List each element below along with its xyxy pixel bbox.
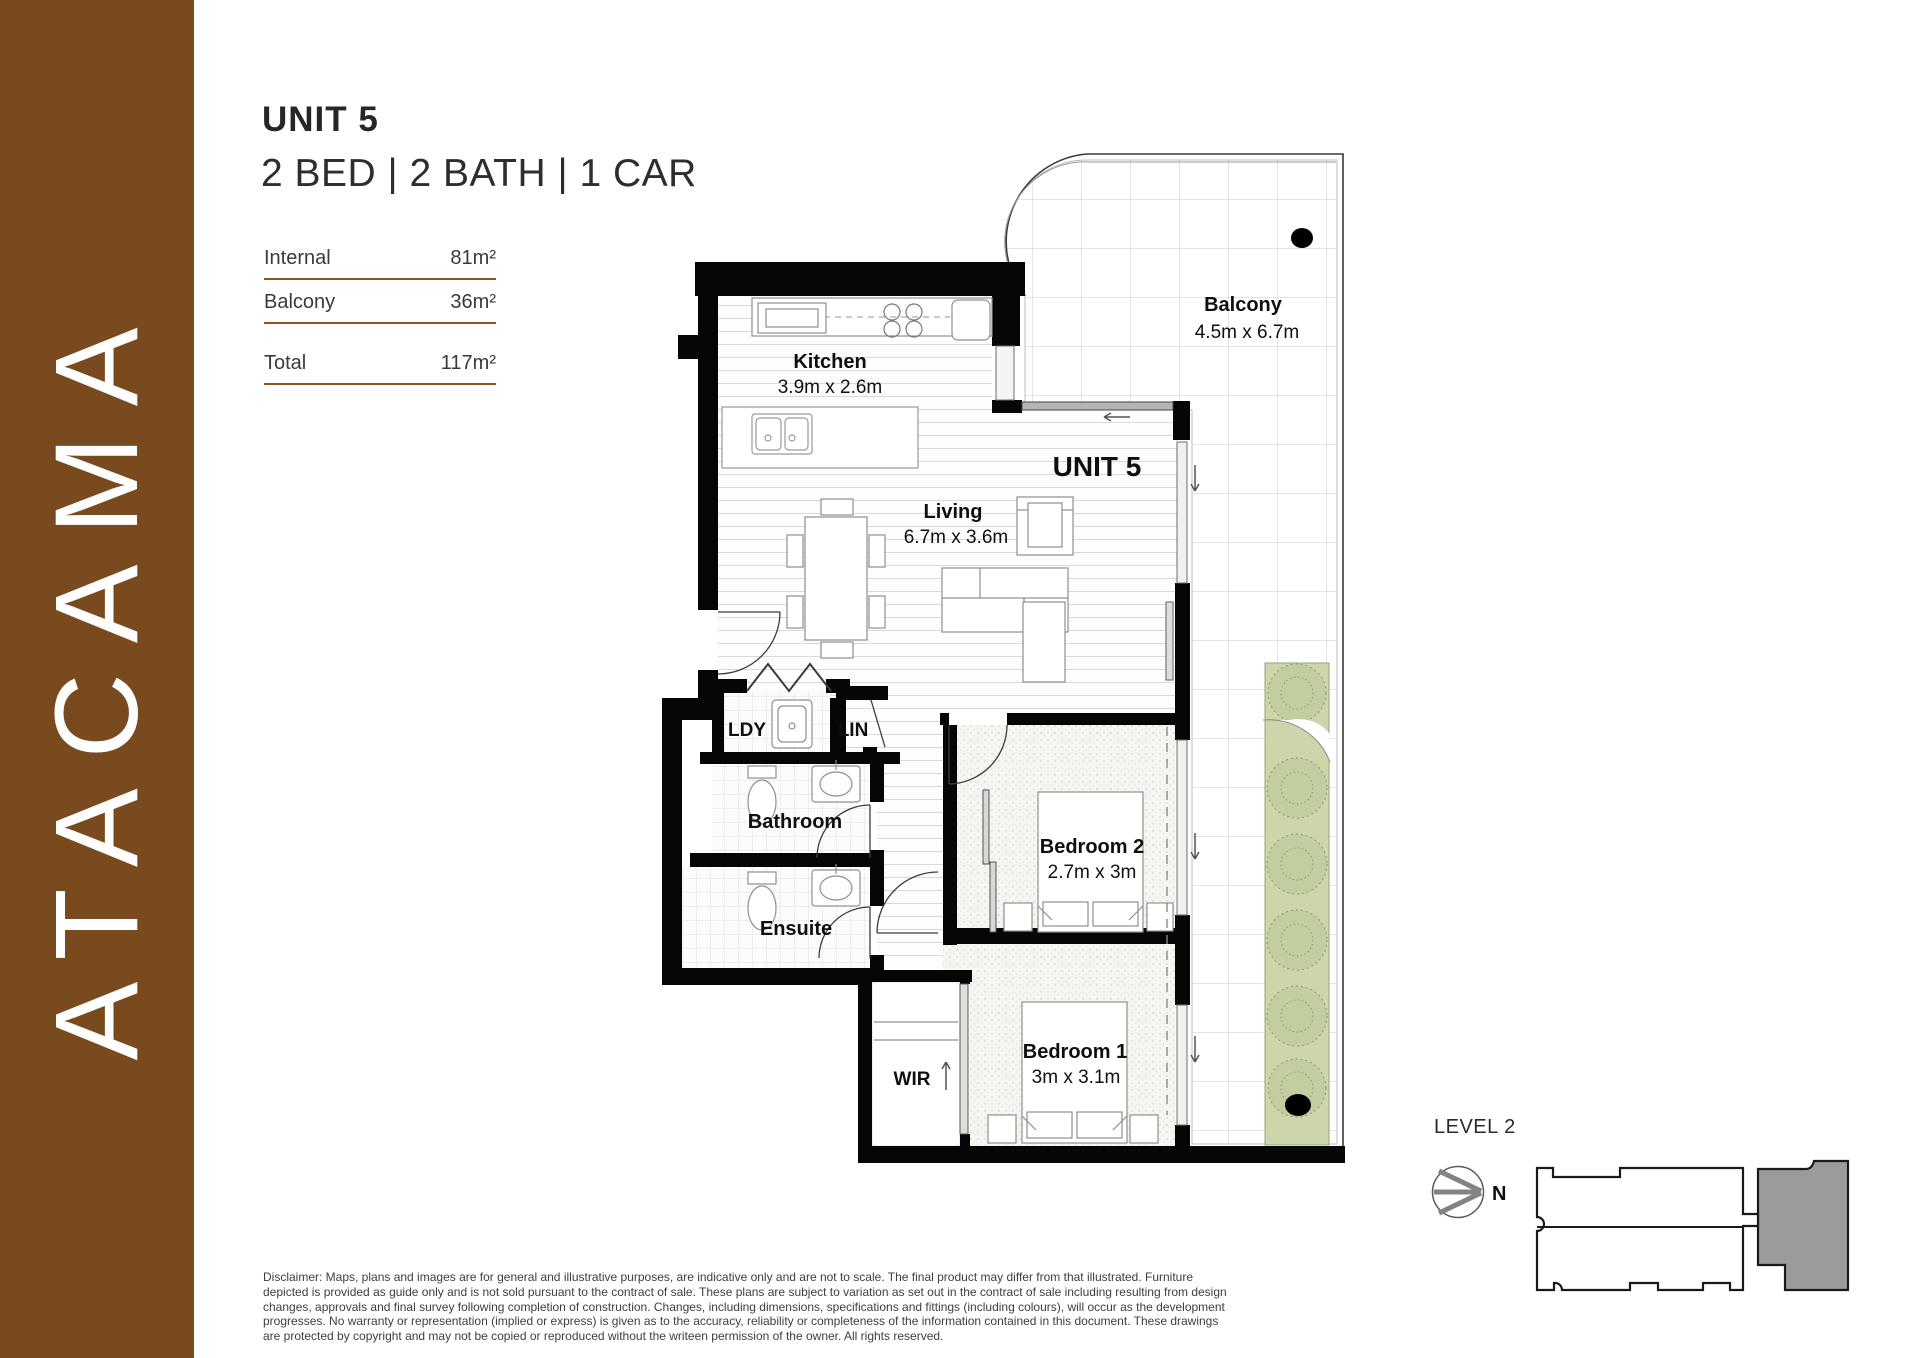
armchair bbox=[1017, 497, 1073, 555]
tv bbox=[1166, 602, 1173, 680]
area-value: 81m² bbox=[450, 247, 496, 270]
room-label-ldy: LDY bbox=[728, 720, 766, 741]
plan-unit-label: UNIT 5 bbox=[1053, 451, 1142, 482]
area-row-total: Total 117m² bbox=[264, 341, 496, 385]
ensuite-vanity bbox=[812, 864, 860, 906]
keyplan-highlighted-unit bbox=[1758, 1161, 1848, 1290]
brand-vertical-text: ATACAMA bbox=[38, 298, 156, 1061]
room-label-bedroom2: Bedroom 2 bbox=[1040, 836, 1144, 858]
room-label-living: Living bbox=[924, 501, 983, 523]
brand-sidebar: ATACAMA bbox=[0, 0, 194, 1358]
bedroom1-window bbox=[1177, 1005, 1187, 1125]
area-row-balcony: Balcony 36m² bbox=[264, 280, 496, 324]
room-label-kitchen: Kitchen bbox=[793, 351, 866, 373]
area-value: 117m² bbox=[441, 352, 496, 375]
keyplan-building-outline bbox=[1537, 1168, 1758, 1290]
room-dims-kitchen: 3.9m x 2.6m bbox=[778, 377, 883, 398]
column-dot-top bbox=[1291, 228, 1313, 248]
keyplan bbox=[1530, 1150, 1870, 1310]
area-row-internal: Internal 81m² bbox=[264, 236, 496, 280]
bedroom2-window bbox=[1177, 740, 1187, 915]
area-table: Internal 81m² Balcony 36m² Total 117m² bbox=[264, 236, 496, 385]
room-dims-living: 6.7m x 3.6m bbox=[904, 527, 1009, 548]
kitchen-window bbox=[996, 346, 1014, 400]
room-dims-bedroom2: 2.7m x 3m bbox=[1048, 862, 1137, 883]
room-label-wir: WIR bbox=[894, 1069, 931, 1090]
living-sliding-door bbox=[1177, 442, 1187, 583]
area-label: Balcony bbox=[264, 291, 335, 314]
area-value: 36m² bbox=[450, 291, 496, 314]
tv-cabinet bbox=[1023, 602, 1065, 682]
wir-sliding-door bbox=[960, 984, 968, 1134]
room-label-bathroom: Bathroom bbox=[748, 811, 842, 833]
balcony-planter bbox=[1263, 663, 1330, 1145]
room-label-lin: LIN bbox=[838, 720, 869, 741]
bathroom-vanity bbox=[812, 760, 860, 802]
unit-configuration: 2 BED | 2 BATH | 1 CAR bbox=[261, 152, 697, 196]
north-label: N bbox=[1492, 1183, 1506, 1205]
room-dims-balcony: 4.5m x 6.7m bbox=[1195, 322, 1300, 343]
column-dot-bottom bbox=[1285, 1094, 1311, 1116]
dining-table bbox=[805, 517, 867, 640]
area-label: Internal bbox=[264, 247, 331, 270]
room-label-ensuite: Ensuite bbox=[760, 918, 832, 940]
level-label: LEVEL 2 bbox=[1434, 1116, 1516, 1139]
fridge bbox=[952, 300, 990, 340]
north-arrow-icon bbox=[1434, 1171, 1481, 1213]
room-dims-bedroom1: 3m x 3.1m bbox=[1032, 1067, 1121, 1088]
disclaimer-text: Disclaimer: Maps, plans and images are f… bbox=[263, 1270, 1233, 1344]
area-label: Total bbox=[264, 352, 306, 375]
room-label-balcony: Balcony bbox=[1204, 294, 1283, 316]
north-compass: N bbox=[1428, 1160, 1528, 1226]
floorplan: Balcony 4.5m x 6.7m Kitchen 3.9m x 2.6m … bbox=[640, 150, 1360, 1170]
page-title: UNIT 5 bbox=[262, 100, 379, 140]
laundry-tub bbox=[772, 700, 812, 748]
balcony-slider-track bbox=[1022, 402, 1173, 410]
room-label-bedroom1: Bedroom 1 bbox=[1023, 1041, 1127, 1063]
